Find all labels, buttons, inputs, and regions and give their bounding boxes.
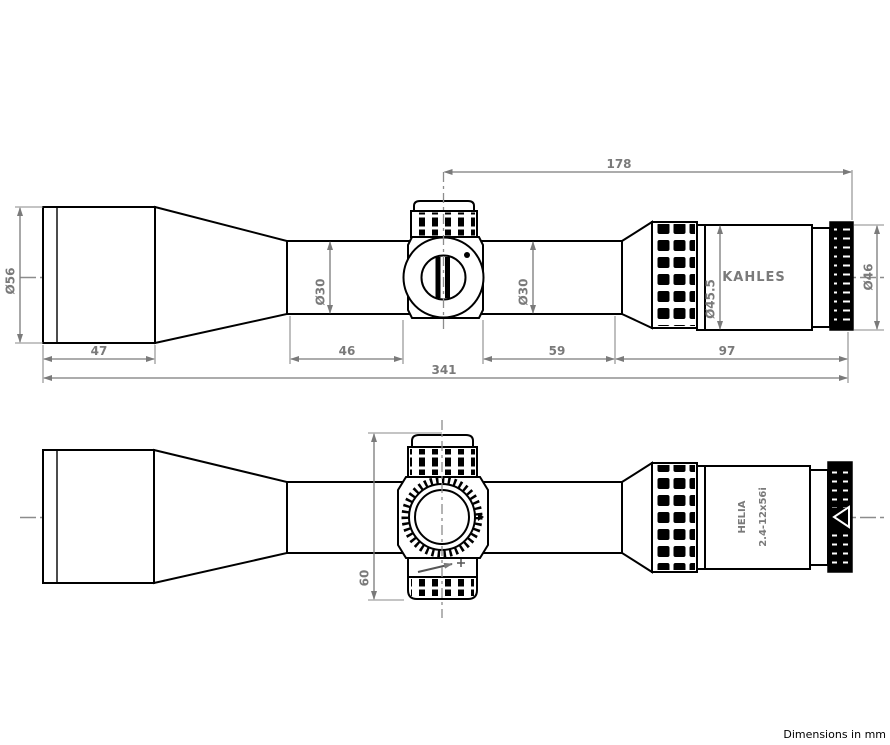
units-note: Dimensions in mm [783, 728, 886, 741]
eyepiece-taper [622, 222, 652, 328]
turret-slot-right [445, 257, 450, 298]
top-view-group: HELIA 2.4-12x56i 60 [20, 420, 886, 618]
magnification-ring-knurl [654, 224, 695, 326]
model-label: HELIA [737, 500, 748, 533]
dim-label-tube-diameter-front: Ø30 [314, 279, 328, 306]
eyepiece-taper [622, 463, 652, 572]
model-spec-label: 2.4-12x56i [758, 487, 769, 547]
objective-bell [43, 207, 155, 343]
dim-label-front-tube: 46 [339, 344, 356, 358]
turret-index-dot [464, 252, 470, 258]
dim-label-tube-diameter-rear: Ø30 [517, 279, 531, 306]
brand-label: KAHLES [722, 270, 786, 285]
dim-label-objective-length: 47 [91, 344, 108, 358]
dim-label-overall-length: 341 [431, 363, 456, 377]
dim-label-objective-diameter: Ø56 [4, 268, 18, 295]
dim-label-turret-to-end: 178 [606, 157, 631, 171]
eyepiece-step-ring [812, 228, 830, 327]
objective-taper [154, 450, 287, 583]
objective-bell [43, 450, 154, 583]
ring-body-junction [697, 466, 705, 569]
diopter-ring-knurl [832, 468, 848, 508]
magnification-ring-knurl [654, 465, 695, 570]
objective-taper [155, 207, 287, 343]
dim-label-rear-tube: 59 [549, 344, 566, 358]
dim-label-eyepiece-length: 97 [719, 344, 736, 358]
side-view-group: KAHLES Ø56 47 46 59 97 341 178 Ø30 Ø30 Ø… [4, 157, 887, 383]
dim-label-turret-height: 60 [358, 570, 372, 587]
dim-label-eyepiece-diameter: Ø45.5 [704, 279, 718, 319]
dim-label-end-diameter: Ø46 [862, 264, 876, 291]
drawing-canvas: KAHLES Ø56 47 46 59 97 341 178 Ø30 Ø30 Ø… [0, 0, 890, 745]
scope-drawing-svg: KAHLES Ø56 47 46 59 97 341 178 Ø30 Ø30 Ø… [0, 0, 890, 745]
diopter-ring-knurl [834, 228, 850, 324]
diopter-ring-knurl [832, 528, 848, 566]
eyepiece-step-ring [810, 470, 828, 565]
turret-slot-left [436, 257, 441, 298]
